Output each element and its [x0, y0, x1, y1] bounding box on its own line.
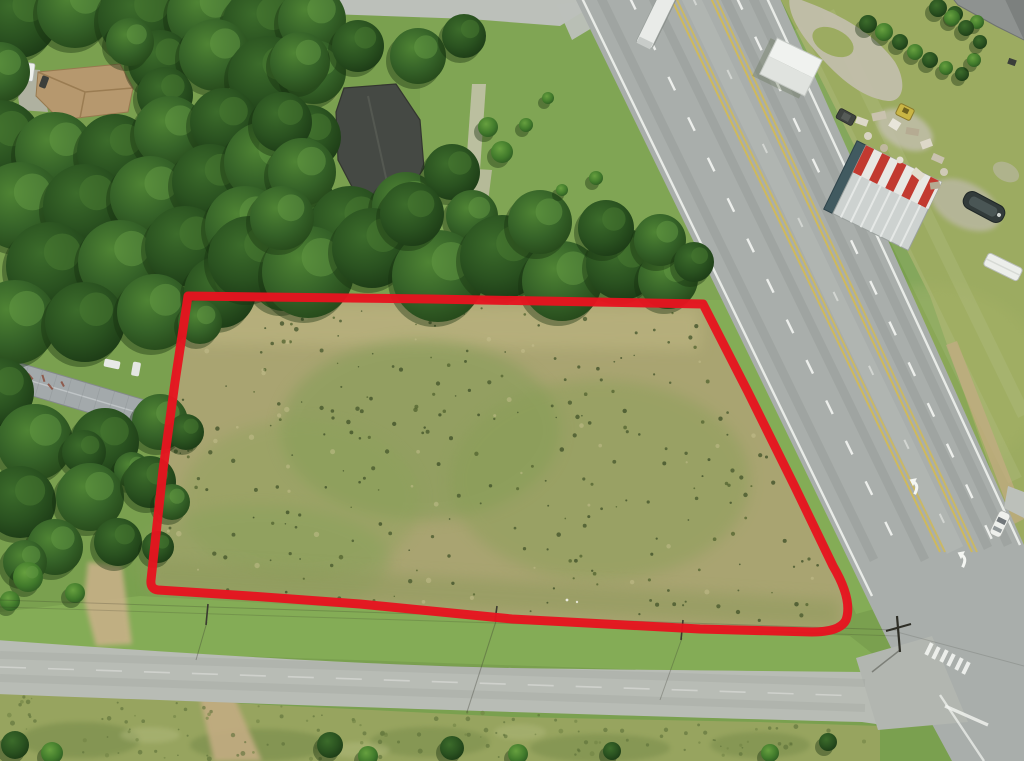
scrub-speckle: [559, 729, 564, 734]
field-speckle: [392, 365, 395, 368]
field-speckle: [612, 460, 616, 464]
scrub-speckle: [739, 744, 742, 747]
scrub-speckle: [794, 724, 799, 729]
field-speckle: [331, 416, 334, 419]
field-speckle: [416, 569, 418, 571]
field-speckle: [480, 307, 482, 309]
field-speckle: [583, 524, 587, 528]
field-speckle: [468, 389, 471, 392]
field-tuft: [704, 589, 709, 594]
field-speckle: [474, 452, 478, 456]
scrub-speckle: [620, 729, 624, 733]
field-speckle: [551, 404, 554, 407]
scrub-speckle: [360, 741, 363, 744]
field-speckle: [371, 466, 375, 470]
field-speckle: [688, 335, 692, 339]
field-speckle: [277, 402, 281, 406]
field-speckle: [282, 340, 286, 344]
field-speckle: [816, 564, 819, 567]
scrub-speckle: [164, 757, 166, 759]
field-speckle: [716, 604, 720, 608]
field-speckle: [408, 579, 412, 583]
scrub-speckle: [684, 731, 688, 735]
field-tuft: [286, 340, 290, 344]
scrub-speckle: [385, 733, 388, 736]
scrub-speckle: [281, 742, 285, 746]
scrub-speckle: [434, 716, 439, 721]
field-speckle: [431, 535, 434, 538]
field-speckle: [368, 436, 371, 439]
field-speckle: [285, 523, 287, 525]
field-speckle: [447, 363, 451, 367]
scrub-speckle: [173, 715, 176, 718]
field-speckle: [430, 357, 432, 359]
field-speckle: [449, 518, 451, 520]
field-speckle: [591, 570, 593, 572]
scrub-speckle: [135, 738, 138, 741]
scrub-speckle: [176, 702, 178, 704]
field-tuft: [686, 461, 688, 463]
field-speckle: [319, 406, 323, 410]
scrub-speckle: [134, 715, 136, 717]
field-speckle: [517, 412, 519, 414]
field-speckle: [626, 430, 629, 433]
scrub-speckle: [862, 739, 866, 743]
field-speckle: [466, 350, 469, 353]
field-speckle: [225, 385, 227, 387]
scrub-speckle: [244, 741, 246, 743]
field-speckle: [575, 415, 579, 419]
field-speckle: [758, 453, 762, 457]
field-speckle: [613, 361, 615, 363]
aerial-photo-canvas: [0, 0, 1024, 761]
field-tuft: [811, 577, 814, 580]
field-speckle: [197, 477, 200, 480]
field-speckle: [299, 558, 301, 560]
field-tuft: [197, 569, 199, 571]
scrub-speckle: [31, 698, 33, 700]
field-speckle: [693, 487, 695, 489]
scrub-speckle: [594, 741, 598, 745]
field-speckle: [556, 532, 561, 537]
scrub-speckle: [783, 745, 788, 750]
field-speckle: [294, 327, 299, 332]
field-speckle: [587, 515, 590, 518]
field-speckle: [622, 409, 626, 413]
field-speckle: [573, 433, 577, 437]
field-speckle: [649, 599, 652, 602]
field-speckle: [270, 425, 272, 427]
field-speckle: [574, 559, 578, 563]
field-speckle: [280, 321, 284, 325]
field-speckle: [303, 578, 305, 580]
field-speckle: [546, 602, 548, 604]
field-speckle: [487, 380, 491, 384]
field-speckle: [253, 517, 255, 519]
scrub-speckle: [209, 710, 212, 713]
scrub-speckle: [178, 729, 180, 731]
field-speckle: [564, 378, 567, 381]
scrub-speckle: [128, 730, 131, 733]
scrub-speckle: [18, 703, 21, 706]
field-speckle: [579, 555, 582, 558]
field-speckle: [771, 592, 773, 594]
field-speckle: [254, 488, 258, 492]
field-speckle: [560, 447, 565, 452]
field-speckle: [361, 310, 362, 311]
scrub-speckle: [755, 728, 758, 731]
field-speckle: [698, 569, 701, 572]
field-speckle: [726, 434, 728, 436]
scrub-speckle: [306, 720, 308, 722]
field-speckle: [399, 368, 403, 372]
scrub-speckle: [722, 754, 725, 757]
scrub-speckle: [453, 723, 457, 727]
field-tuft: [204, 349, 209, 354]
field-speckle: [408, 549, 410, 551]
scrub-speckle: [554, 719, 557, 722]
field-speckle: [223, 555, 227, 559]
field-speckle: [449, 436, 453, 440]
field-speckle: [718, 417, 722, 421]
field-speckle: [320, 349, 324, 353]
field-tuft: [434, 502, 439, 507]
scrub-speckle: [498, 756, 500, 758]
scrub-speckle: [378, 755, 382, 759]
scrub-speckle: [202, 706, 206, 710]
scrub-speckle: [231, 733, 235, 737]
scrub-speckle: [206, 717, 209, 720]
white-speck: [566, 599, 569, 602]
field-tuft: [416, 450, 420, 454]
field-tuft: [261, 368, 264, 371]
field-speckle: [684, 452, 687, 455]
field-speckle: [359, 437, 362, 440]
field-speckle: [286, 511, 290, 515]
scrub-speckle: [590, 751, 595, 756]
scrub-speckle: [82, 751, 84, 753]
scrub-speckle: [599, 741, 602, 744]
field-speckle: [553, 587, 555, 589]
field-speckle: [205, 488, 208, 491]
scrub-speckle: [359, 724, 361, 726]
field-speckle: [279, 418, 282, 421]
field-speckle: [212, 551, 216, 555]
field-tuft: [587, 504, 590, 507]
field-speckle: [805, 603, 808, 606]
field-tuft: [284, 407, 289, 412]
field-speckle: [208, 450, 212, 454]
field-speckle: [215, 426, 219, 430]
field-tuft: [422, 600, 426, 604]
field-speckle: [378, 489, 380, 491]
scrub-speckle: [309, 757, 313, 761]
field-speckle: [414, 405, 418, 409]
field-speckle: [794, 602, 799, 607]
field-speckle: [285, 591, 288, 594]
field-speckle: [330, 564, 333, 567]
field-speckle: [669, 381, 671, 383]
field-speckle: [799, 613, 803, 617]
field-speckle: [727, 484, 730, 487]
scrub-speckle: [380, 731, 385, 736]
scrub-speckle: [480, 711, 484, 715]
field-speckle: [694, 324, 698, 328]
field-speckle: [729, 502, 731, 504]
field-speckle: [588, 421, 592, 425]
field-speckle: [489, 484, 492, 487]
field-speckle: [447, 554, 450, 557]
field-speckle: [464, 360, 467, 363]
field-speckle: [638, 613, 640, 615]
field-tuft: [487, 337, 492, 342]
scrub-speckle: [397, 740, 400, 743]
field-speckle: [731, 532, 735, 536]
scrub-speckle: [698, 741, 700, 743]
field-speckle: [739, 564, 741, 566]
field-speckle: [739, 475, 743, 479]
field-tuft: [579, 423, 584, 428]
scrub-speckle: [206, 755, 208, 757]
field-speckle: [648, 578, 651, 581]
scrub-dark-patch: [20, 722, 140, 758]
scrub-light-tuft: [494, 724, 546, 740]
field-speckle: [736, 610, 740, 614]
field-tuft: [493, 414, 496, 417]
field-speckle: [600, 378, 603, 381]
field-tuft: [426, 578, 431, 583]
field-speckle: [530, 610, 532, 612]
field-tuft: [176, 531, 182, 537]
field-speckle: [547, 505, 549, 507]
field-tuft: [314, 532, 319, 537]
field-tuft: [249, 435, 254, 440]
scrub-speckle: [486, 744, 490, 748]
field-speckle: [583, 317, 587, 321]
field-speckle: [473, 593, 475, 595]
scrub-speckle: [154, 750, 157, 753]
field-speckle: [596, 367, 600, 371]
scrub-speckle: [240, 751, 245, 756]
field-speckle: [581, 415, 583, 417]
field-speckle: [568, 559, 572, 563]
field-speckle: [379, 522, 383, 526]
scrub-speckle: [187, 735, 189, 737]
field-speckle: [514, 527, 517, 530]
field-speckle: [423, 426, 425, 428]
field-tuft: [521, 349, 525, 353]
scrub-speckle: [535, 734, 537, 736]
field-speckle: [743, 493, 747, 497]
scrub-speckle: [495, 732, 497, 734]
scrub-speckle: [418, 749, 423, 754]
field-speckle: [665, 447, 668, 450]
field-tuft: [507, 397, 512, 402]
field-speckle: [596, 583, 598, 585]
field-tuft: [411, 485, 414, 488]
scrub-speckle: [321, 714, 323, 716]
scrub-speckle: [141, 719, 145, 723]
aerial-photo: [0, 0, 1024, 761]
field-speckle: [713, 537, 717, 541]
scrub-speckle: [317, 729, 320, 732]
field-speckle: [333, 316, 335, 318]
scrub-speckle: [101, 718, 103, 720]
scrub-speckle: [768, 726, 771, 729]
field-tuft: [532, 344, 535, 347]
field-speckle: [708, 458, 711, 461]
field-speckle: [480, 502, 482, 504]
field-tuft: [286, 465, 290, 469]
scrub-speckle: [512, 718, 515, 721]
scrub-speckle: [503, 721, 505, 723]
field-speckle: [323, 433, 325, 435]
field-speckle: [758, 619, 761, 622]
field-speckle: [655, 603, 659, 607]
field-speckle: [625, 499, 627, 501]
field-speckle: [807, 557, 810, 560]
field-speckle: [793, 566, 795, 568]
scrub-speckle: [107, 716, 112, 721]
scrub-speckle: [742, 747, 744, 749]
scrub-speckle: [117, 752, 119, 754]
field-speckle: [182, 399, 184, 401]
field-speckle: [701, 420, 705, 424]
field-tuft: [751, 433, 756, 438]
scrub-speckle: [105, 753, 109, 757]
scrub-speckle: [660, 735, 664, 739]
scrub-speckle: [684, 749, 686, 751]
field-speckle: [667, 341, 670, 344]
scrub-speckle: [258, 705, 260, 707]
field-tuft: [630, 580, 634, 584]
scrub-speckle: [697, 723, 700, 726]
field-speckle: [231, 459, 235, 463]
field-speckle: [187, 455, 190, 458]
field-speckle: [355, 407, 359, 411]
field-speckle: [547, 548, 549, 550]
field-speckle: [600, 507, 603, 510]
field-tuft: [415, 338, 417, 340]
scrub-speckle: [626, 739, 629, 742]
field-speckle: [647, 500, 650, 503]
field-speckle: [438, 413, 441, 416]
field-speckle: [568, 400, 572, 404]
field-speckle: [750, 485, 752, 487]
field-speckle: [531, 465, 534, 468]
field-speckle: [564, 518, 566, 520]
field-speckle: [169, 527, 172, 530]
field-speckle: [436, 381, 440, 385]
field-speckle: [653, 329, 656, 332]
scrub-speckle: [378, 740, 382, 744]
field-speckle: [366, 396, 368, 398]
field-speckle: [260, 351, 263, 354]
scrub-speckle: [503, 734, 506, 737]
field-speckle: [516, 487, 519, 490]
scrub-speckle: [252, 751, 255, 754]
field-speckle: [325, 486, 328, 489]
field-speckle: [650, 553, 653, 556]
field-speckle: [457, 494, 461, 498]
scrub-speckle: [10, 721, 15, 726]
field-speckle: [289, 552, 292, 555]
scrub-speckle: [464, 733, 466, 735]
field-speckle: [672, 602, 676, 606]
scrub-speckle: [574, 753, 576, 755]
scrub-speckle: [466, 717, 471, 722]
scrub-speckle: [117, 702, 119, 704]
field-speckle: [726, 411, 729, 414]
scrub-speckle: [22, 695, 25, 698]
scrub-speckle: [138, 750, 143, 755]
field-speckle: [682, 604, 684, 606]
field-speckle: [290, 323, 293, 326]
field-speckle: [363, 477, 366, 480]
field-speckle: [662, 461, 666, 465]
field-speckle: [584, 392, 588, 396]
scrub-speckle: [664, 728, 668, 732]
field-green-patch: [450, 380, 750, 580]
scrub-speckle: [280, 714, 284, 718]
field-speckle: [801, 560, 804, 563]
field-speckle: [194, 486, 198, 490]
scrub-speckle: [739, 752, 743, 756]
field-speckle: [276, 485, 279, 488]
field-speckle: [744, 517, 747, 520]
scrub-speckle: [480, 736, 482, 738]
field-speckle: [685, 601, 687, 603]
field-speckle: [426, 430, 430, 434]
field-speckle: [394, 596, 395, 597]
scrub-speckle: [177, 754, 179, 756]
field-speckle: [633, 355, 635, 357]
scrub-speckle: [236, 754, 239, 757]
scrub-speckle: [352, 719, 356, 723]
field-speckle: [451, 582, 454, 585]
field-speckle: [573, 577, 575, 579]
scrub-speckle: [776, 727, 779, 730]
field-speckle: [554, 357, 557, 360]
field-speckle: [577, 365, 580, 368]
field-speckle: [337, 335, 339, 337]
scrub-speckle: [778, 742, 782, 746]
field-tuft: [715, 444, 719, 448]
field-speckle: [693, 346, 696, 349]
field-speckle: [415, 324, 417, 326]
field-speckle: [352, 540, 355, 543]
field-speckle: [590, 483, 593, 486]
scrub-speckle: [790, 743, 793, 746]
field-speckle: [737, 589, 739, 591]
field-speckle: [331, 409, 335, 413]
scrub-speckle: [747, 741, 749, 743]
field-speckle: [706, 380, 710, 384]
field-tuft: [236, 426, 239, 429]
scrub-speckle: [578, 749, 581, 752]
field-speckle: [545, 480, 547, 482]
scrub-speckle: [417, 732, 421, 736]
field-tuft: [533, 567, 535, 569]
scrub-speckle: [184, 708, 188, 712]
field-speckle: [301, 401, 303, 403]
field-speckle: [349, 430, 353, 434]
scrub-speckle: [280, 705, 282, 707]
field-speckle: [270, 559, 272, 561]
scrub-speckle: [124, 720, 128, 724]
scrub-speckle: [826, 728, 830, 732]
field-speckle: [504, 351, 506, 353]
